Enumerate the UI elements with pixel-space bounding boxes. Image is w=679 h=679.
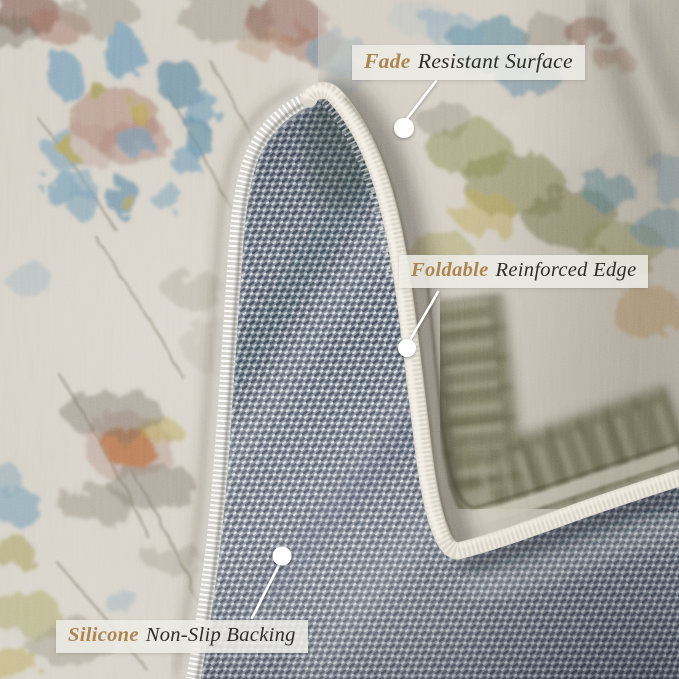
annotation-silicone-non-slip-backing: Silicone Non-Slip Backing	[56, 620, 308, 653]
annotation-highlight: Fade	[364, 49, 411, 74]
annotation-text: Resistant Surface	[418, 49, 573, 74]
annotation-highlight: Foldable	[411, 259, 489, 282]
callout-dot-silicone	[273, 547, 292, 566]
annotation-text: Non-Slip Backing	[146, 624, 296, 647]
rug-product-image: Fade Resistant Surface Foldable Reinforc…	[0, 0, 679, 679]
callout-dot-foldable	[398, 339, 416, 357]
callout-dot-fade	[394, 118, 414, 138]
grain-texture-overlay	[0, 0, 679, 679]
rug-photo-canvas	[0, 0, 679, 679]
annotation-fade-resistant-surface: Fade Resistant Surface	[352, 45, 585, 80]
annotation-text: Reinforced Edge	[496, 259, 637, 282]
annotation-foldable-reinforced-edge: Foldable Reinforced Edge	[399, 255, 648, 288]
annotation-highlight: Silicone	[68, 624, 139, 647]
